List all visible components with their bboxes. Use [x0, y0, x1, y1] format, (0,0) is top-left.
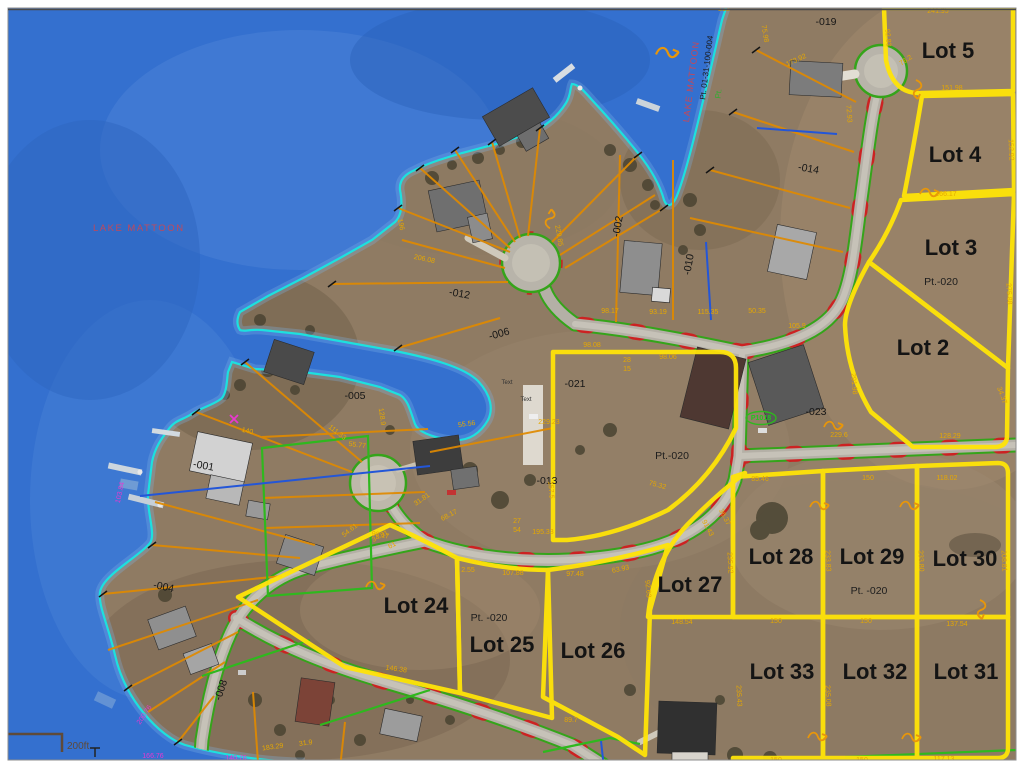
dimension-label: 28 [623, 357, 631, 364]
dimension-label: 150 [860, 618, 872, 625]
dimension-label: 235.08 [823, 685, 831, 707]
pt020-label: Pt. -020 [471, 612, 508, 624]
shore-green-label: Pt. [713, 88, 723, 99]
address-badge: P1018 [751, 415, 771, 422]
lot-label-2: Lot 2 [897, 335, 950, 360]
dimension-label: 195.33 [532, 529, 554, 536]
lot-label-5: Lot 5 [922, 38, 975, 63]
dimension-label: 128.29 [939, 433, 961, 440]
dimension-label: 150 [862, 475, 874, 482]
dimension-label: 233.80 [916, 550, 924, 572]
pt020-label: Pt. -020 [851, 585, 888, 597]
dimension-label: 137.54 [946, 621, 968, 628]
pt020-label: Pt.-020 [924, 276, 958, 288]
lot-label-24: Lot 24 [384, 593, 450, 618]
dimension-label: 152.92 [1007, 139, 1015, 161]
dimension-label: 97.48 [566, 571, 584, 578]
lot-label-28: Lot 28 [749, 544, 814, 569]
lot-label-30: Lot 30 [933, 546, 998, 571]
dimension-label: 208.81 [999, 550, 1007, 572]
dimension-label: 98.17 [601, 308, 619, 315]
dimension-label: 275.88 [1004, 283, 1012, 305]
dimension-label: 235.43 [734, 685, 742, 707]
dimension-label: 85.46 [751, 476, 769, 483]
dimension-label: 166.17 [935, 191, 957, 198]
lot-label-26: Lot 26 [561, 638, 626, 663]
parcel-id-label: -019 [815, 16, 836, 28]
dimension-label: 229.23 [538, 419, 560, 426]
plat-map: LAKE MATTOON LAKE MATTOON Pt. 01-31-100-… [0, 0, 1024, 768]
dimension-label: 233.83 [823, 550, 831, 572]
tiny-text-label: Text [520, 397, 531, 403]
lot-label-4: Lot 4 [929, 142, 982, 167]
dimension-label: 150 [770, 618, 782, 625]
scale-label: 200ft [67, 741, 89, 752]
dimension-label: 166.76 [142, 753, 164, 760]
lot-label-33: Lot 33 [750, 659, 815, 684]
lot-label-27: Lot 27 [658, 572, 723, 597]
dimension-label: 105.9 [788, 323, 806, 330]
lake-name-label: LAKE MATTOON [93, 223, 185, 234]
dimension-label: 115.35 [698, 309, 719, 316]
dimension-label: 98.06 [659, 354, 677, 361]
parcel-id-label: -023 [805, 406, 826, 418]
dimension-label: 229.6 [830, 432, 848, 439]
pt020-label: Pt.-020 [655, 450, 689, 462]
parcel-id-label: -021 [564, 378, 585, 390]
lot-label-25: Lot 25 [470, 632, 535, 657]
dimension-label: 89.7 [564, 717, 578, 724]
dimension-label: 107.88 [502, 570, 524, 577]
dimension-label: 235.92 [725, 552, 733, 574]
dimension-label: 54 [513, 527, 521, 534]
dimension-label: 151.98 [941, 85, 963, 92]
lot-label-29: Lot 29 [840, 544, 905, 569]
lot-label-31: Lot 31 [934, 659, 999, 684]
map-canvas: LAKE MATTOON LAKE MATTOON Pt. 01-31-100-… [0, 0, 1024, 768]
dimension-label: 27 [513, 518, 521, 525]
dimension-label: 118.02 [937, 475, 958, 482]
dimension-label: 50.35 [748, 308, 766, 315]
dimension-label: 98.08 [583, 342, 601, 349]
parcel-id-label: -005 [344, 390, 365, 402]
dimension-label: 93.19 [649, 309, 667, 316]
lot-label-3: Lot 3 [925, 235, 978, 260]
dimension-label: 2.55 [461, 567, 475, 574]
tiny-text-label: Text [501, 380, 512, 386]
lot-label-32: Lot 32 [843, 659, 908, 684]
dimension-label: 15 [623, 366, 631, 373]
dimension-label: 148.54 [671, 619, 693, 626]
